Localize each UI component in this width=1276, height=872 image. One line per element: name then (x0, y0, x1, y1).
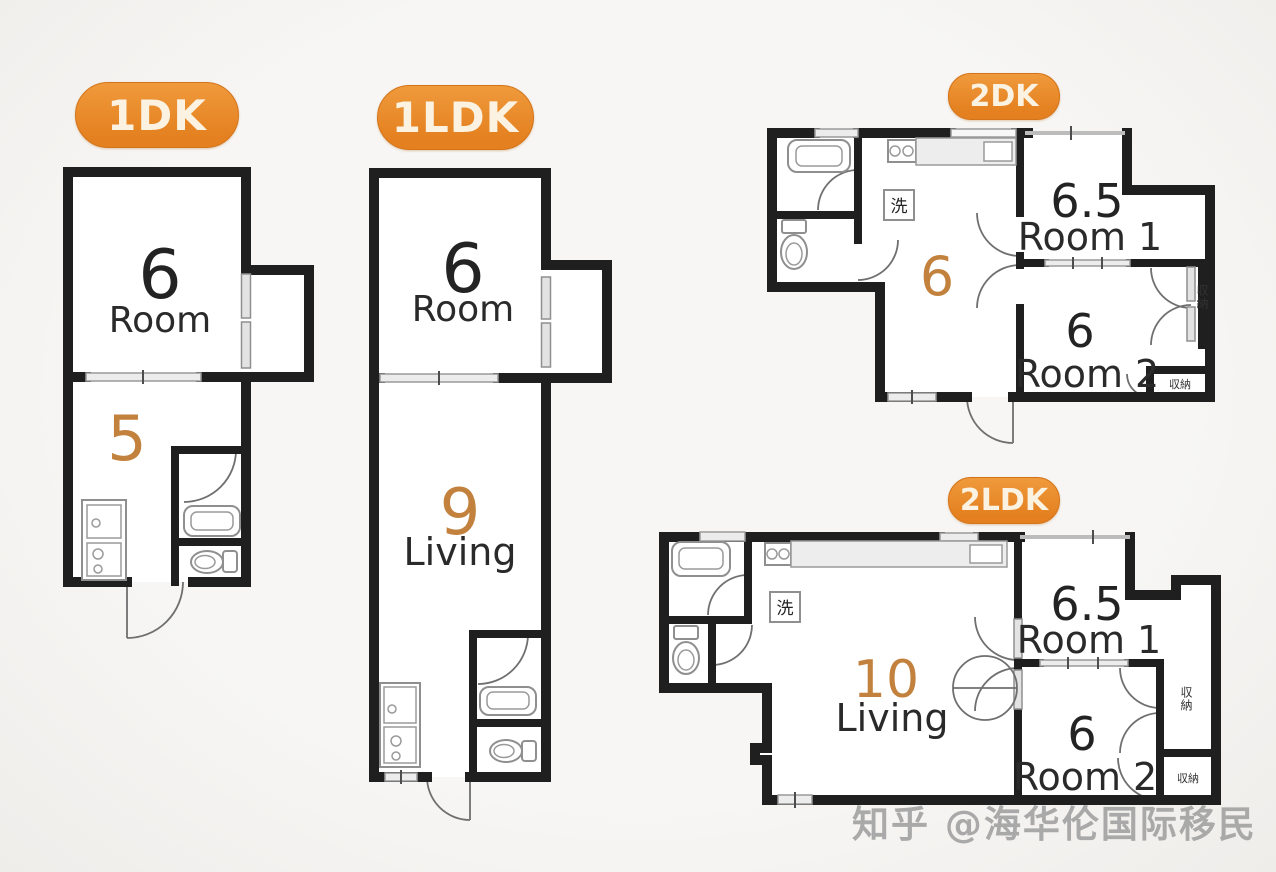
closet-side-label: 収納 (1196, 284, 1208, 310)
badge-1ldk: 1LDK (377, 85, 534, 150)
dk-size-label: 6 (920, 245, 954, 308)
living-name-label: Living (836, 696, 949, 740)
closet-bottom-label: 収納 (1169, 378, 1191, 391)
kitchen-unit-icon (380, 683, 420, 767)
bathtub-icon (184, 506, 240, 536)
sink-icon (984, 142, 1012, 161)
watermark: 知乎 @海华伦国际移民 (852, 794, 1272, 848)
kitchen-unit-icon (82, 500, 126, 580)
bathtub-icon (480, 687, 536, 715)
room-name-label: Room (109, 300, 212, 341)
floor-plan-2ldk-drawing: 洗 10 Living 6.5 Room 1 6 Room 2 収納 (648, 518, 1233, 838)
toilet-icon (191, 551, 237, 573)
closet-side-label: 収納 (1180, 686, 1192, 712)
bathtub-icon (788, 140, 850, 172)
toilet-icon (781, 220, 807, 269)
badge-1dk: 1DK (75, 82, 239, 148)
room2-size-label: 6 (1067, 707, 1096, 761)
room2-name-label: Room 2 (1013, 755, 1157, 799)
floor-plan-2dk-drawing: 洗 6 6.5 Room 1 6 Room 2 収納 (758, 118, 1236, 458)
stove-icon (765, 543, 791, 565)
badge-2ldk: 2LDK (948, 477, 1060, 524)
room1-name-label: Room 1 (1017, 618, 1161, 662)
room2-size-label: 6 (1065, 304, 1094, 358)
sink-icon (970, 545, 1002, 563)
kitchen-counter (791, 541, 1007, 567)
wash-label: 洗 (891, 197, 908, 217)
floor-plan-1ldk: 6 Room 9 Living (358, 163, 623, 833)
toilet-icon (673, 626, 699, 674)
floor-plan-2ldk: 洗 10 Living 6.5 Room 1 6 Room 2 収納 収納 (648, 518, 1233, 838)
living-name-label: Living (404, 530, 517, 574)
floor-plan-2dk: 洗 6 6.5 Room 1 6 Room 2 収納 収納 (758, 118, 1236, 458)
floor-plan-1ldk-drawing: 6 Room 9 Living (358, 163, 623, 833)
dk-size-label: 5 (107, 402, 146, 475)
stove-icon (888, 140, 916, 162)
floor-plan-1dk-drawing: 6 Room 5 (58, 162, 328, 712)
floor-plan-1dk: 6 Room 5 (58, 162, 328, 712)
closet-bottom-label: 収納 (1177, 772, 1199, 785)
room2-name-label: Room 2 (1015, 352, 1159, 396)
wash-label: 洗 (777, 599, 794, 619)
toilet-icon (490, 740, 536, 762)
bathtub-icon (672, 542, 730, 576)
room1-name-label: Room 1 (1018, 215, 1162, 259)
badge-2dk: 2DK (948, 73, 1060, 120)
room-name-label: Room (412, 289, 515, 330)
floor-plans-canvas: 1DK 1LDK 2DK 2LDK (0, 0, 1276, 872)
kitchen-counter (916, 138, 1016, 165)
